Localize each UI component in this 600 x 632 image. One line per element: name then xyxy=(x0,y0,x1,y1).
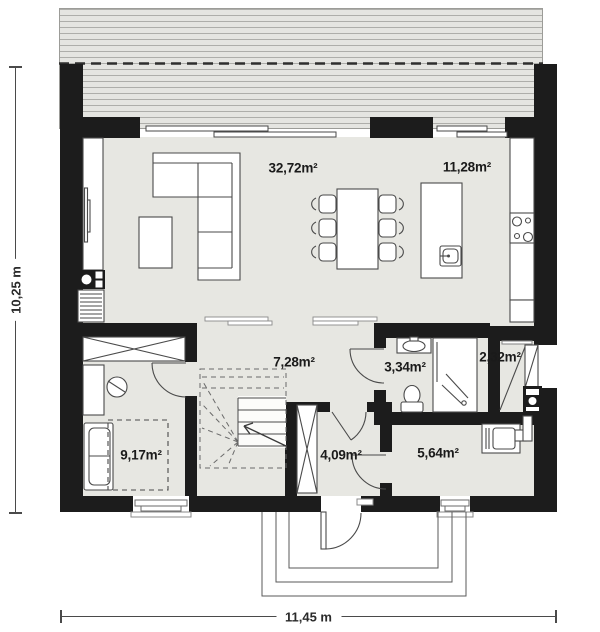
plan-linework xyxy=(0,0,600,632)
bathroom-fixtures xyxy=(350,337,477,412)
room-label-vestibule: 4,09m² xyxy=(320,448,362,463)
radiator-fins xyxy=(80,294,102,318)
flue-vent xyxy=(96,281,103,288)
dimension-tick xyxy=(555,610,557,623)
room-label-bathroom: 3,34m² xyxy=(384,360,426,375)
washbasin-tap xyxy=(410,337,418,341)
bedroom-fixtures xyxy=(83,337,186,490)
sink-tap-dot xyxy=(447,255,450,258)
dimension-tick xyxy=(9,66,22,68)
floor-plan: 32,72m² 11,28m² 7,28m² 3,34m² 2,32m² 9,1… xyxy=(0,0,600,632)
vertical-dimension: 10,25 m xyxy=(9,66,22,514)
room-label-kitchen: 11,28m² xyxy=(443,160,491,175)
coffee-table xyxy=(139,217,172,268)
toilet-tank xyxy=(401,402,423,412)
room-label-bedroom: 9,17m² xyxy=(120,448,162,463)
horizontal-dimension: 11,45 m xyxy=(60,610,557,623)
flue-vent xyxy=(96,272,103,279)
height-dimension-label: 10,25 m xyxy=(7,259,24,321)
dimension-tick xyxy=(60,610,62,623)
flue-pipe-vertical xyxy=(523,416,532,441)
entry-threshold xyxy=(357,499,373,505)
bedroom-door xyxy=(152,363,186,397)
winder-staircase xyxy=(200,369,286,468)
desk xyxy=(83,365,104,415)
entry xyxy=(131,499,473,596)
storage-sill xyxy=(502,341,532,344)
living-room-fixtures xyxy=(78,138,240,322)
tv-screen xyxy=(88,200,91,232)
dimension-tick xyxy=(9,512,22,514)
bathroom-door xyxy=(350,349,384,383)
dining-set xyxy=(312,189,404,269)
width-dimension-label: 11,45 m xyxy=(276,608,341,625)
room-label-storage: 2,32m² xyxy=(479,350,521,365)
stair-winder-dashes xyxy=(202,380,238,466)
cooktop xyxy=(510,213,534,243)
terrace-sliding-doors xyxy=(146,126,507,137)
flue-opening xyxy=(82,275,92,285)
room-label-hall: 7,28m² xyxy=(273,355,315,370)
opening-lintel-marks xyxy=(205,317,377,325)
dining-table xyxy=(337,189,378,269)
hall-vestibule-door xyxy=(332,412,366,440)
room-label-utility: 5,64m² xyxy=(417,446,459,461)
entry-steps xyxy=(262,512,466,596)
shower-cabin xyxy=(433,338,477,412)
room-label-living: 32,72m² xyxy=(269,161,318,176)
entry-door xyxy=(321,512,361,549)
kitchen-base-unit xyxy=(510,300,534,322)
